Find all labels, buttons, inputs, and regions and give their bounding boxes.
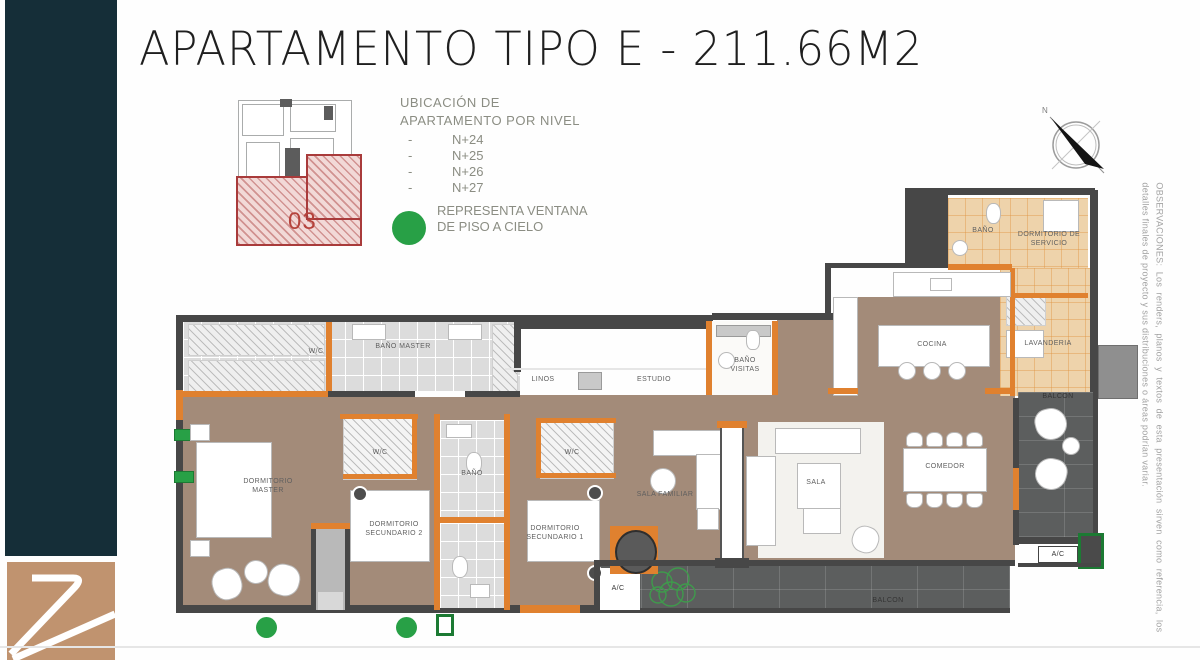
stool xyxy=(923,362,941,380)
room-label-linos: LINOS xyxy=(520,375,566,384)
sink xyxy=(952,240,968,256)
wall-accent xyxy=(176,390,183,420)
room-label-balcon-bottom: BALCON xyxy=(860,596,916,605)
window-marker-dot xyxy=(396,617,417,638)
kitchen-counter xyxy=(893,272,1011,297)
wall xyxy=(176,315,520,322)
nightstand xyxy=(190,424,210,441)
wall xyxy=(825,263,831,318)
room-label-bano-master: BAÑO MASTER xyxy=(374,342,432,351)
dining-chair xyxy=(926,432,943,447)
bed xyxy=(1043,200,1079,232)
kitchen-sink xyxy=(930,278,952,291)
slide: APARTAMENTO TIPO E - 211.66M2 03 UBICACI… xyxy=(0,0,1200,660)
dining-chair xyxy=(946,432,963,447)
wall-accent xyxy=(717,421,747,428)
wall-accent xyxy=(828,388,858,394)
toilet xyxy=(452,556,468,578)
wall-accent xyxy=(340,414,418,419)
room-label-bano-shared: BAÑO xyxy=(452,469,492,478)
window-marker xyxy=(174,471,194,483)
dining-chair xyxy=(906,493,923,508)
exterior-ledge xyxy=(1098,345,1138,399)
room-label-lavanderia: LAVANDERIA xyxy=(1008,339,1088,348)
wall-accent xyxy=(311,523,350,529)
wall xyxy=(712,313,835,320)
window-marker xyxy=(436,614,454,636)
wall-accent xyxy=(536,418,616,423)
room-label-sala: SALA xyxy=(798,478,834,487)
room-label-cocina: COCINA xyxy=(902,340,962,349)
toilet xyxy=(746,330,760,350)
ac-unit-right: A/C xyxy=(1038,546,1078,563)
wall xyxy=(514,315,521,372)
dining-chair xyxy=(946,493,963,508)
wall-accent xyxy=(536,418,541,478)
room-label-bano-servicio: BAÑO xyxy=(958,226,1008,235)
closet-shelves xyxy=(188,360,325,394)
wall-core xyxy=(905,193,948,268)
room-label-bano-visitas: BAÑO VISITAS xyxy=(722,356,768,375)
wall xyxy=(518,315,713,329)
wall-accent xyxy=(985,388,1013,394)
fixture xyxy=(587,485,603,501)
kitchen-counter xyxy=(833,297,858,396)
wall-accent xyxy=(412,414,417,478)
room-label-dorm-sec-2: DORMITORIO SECUNDARIO 2 xyxy=(354,520,434,539)
room-label-comedor: COMEDOR xyxy=(910,462,980,471)
wall-accent xyxy=(948,264,1012,270)
room-label-balcon-right: BALCON xyxy=(1030,392,1086,401)
sink xyxy=(470,584,490,598)
wall-accent xyxy=(706,321,712,395)
cabinet xyxy=(716,325,771,337)
room-label-dorm-sec-1: DORMITORIO SECUNDARIO 1 xyxy=(518,524,592,543)
wall xyxy=(176,315,183,612)
wall xyxy=(1018,563,1100,567)
sink xyxy=(446,424,472,438)
wall-accent xyxy=(326,321,332,395)
stool xyxy=(898,362,916,380)
wall-accent xyxy=(772,321,778,395)
fixture xyxy=(352,486,368,502)
door-leaf xyxy=(578,372,602,390)
room-label-wc-2: W/C xyxy=(362,448,398,457)
dining-chair xyxy=(966,432,983,447)
room-label-wc-1: W/C xyxy=(554,448,590,457)
wall-accent xyxy=(540,473,616,478)
sofa xyxy=(775,428,861,454)
wall-accent xyxy=(440,517,504,523)
stool xyxy=(948,362,966,380)
slide-edge xyxy=(0,646,1200,648)
room-label-dorm-master: DORMITORIO MASTER xyxy=(232,477,304,496)
room-label-ac-bottom: A/C xyxy=(600,584,636,593)
window-marker-dot xyxy=(256,617,277,638)
wall xyxy=(825,263,907,268)
room-label-estudio: ESTUDIO xyxy=(626,375,682,384)
side-table xyxy=(697,508,719,530)
room-label-wc-master: W/C xyxy=(296,347,336,356)
water-heater xyxy=(615,530,657,574)
wall-accent xyxy=(183,391,328,397)
dining-chair xyxy=(926,493,943,508)
sofa xyxy=(653,430,725,456)
sink xyxy=(448,324,482,340)
wall-accent xyxy=(1013,468,1019,510)
side-table xyxy=(1062,437,1080,455)
entry-door xyxy=(318,592,343,610)
toilet xyxy=(986,203,1001,224)
dining-chair xyxy=(906,432,923,447)
room-label-dorm-servicio: DORMITORIO DE SERVICIO xyxy=(1012,230,1086,249)
wall xyxy=(598,560,1015,566)
sink xyxy=(352,324,386,340)
wall-accent xyxy=(1010,293,1088,298)
wall-accent xyxy=(504,414,510,610)
floor-plan: A/C xyxy=(0,0,1200,660)
room-label-ac-right: A/C xyxy=(1039,550,1077,559)
door-opening xyxy=(415,391,465,397)
dining-chair xyxy=(966,493,983,508)
room-label-sala-familiar: SALA FAMILIAR xyxy=(634,490,696,499)
wall-accent xyxy=(520,605,580,613)
wall-accent xyxy=(343,474,417,479)
nightstand xyxy=(190,540,210,557)
pouf xyxy=(244,560,268,584)
wall-accent xyxy=(434,414,440,610)
floor-edge xyxy=(505,368,713,370)
column xyxy=(720,426,744,564)
coffee-table xyxy=(803,508,841,534)
sofa xyxy=(746,456,776,546)
